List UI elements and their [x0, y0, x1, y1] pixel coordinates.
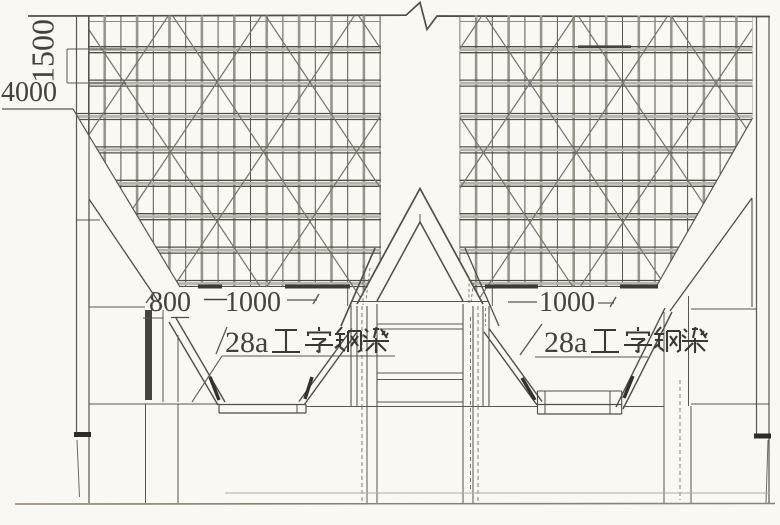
svg-text:28a: 28a — [225, 326, 268, 359]
svg-text:800: 800 — [149, 287, 191, 318]
svg-text:28a: 28a — [544, 326, 587, 359]
svg-text:4000: 4000 — [1, 77, 57, 108]
svg-text:1000: 1000 — [225, 287, 281, 318]
svg-text:1000: 1000 — [539, 287, 595, 318]
svg-text:1500: 1500 — [24, 19, 60, 83]
